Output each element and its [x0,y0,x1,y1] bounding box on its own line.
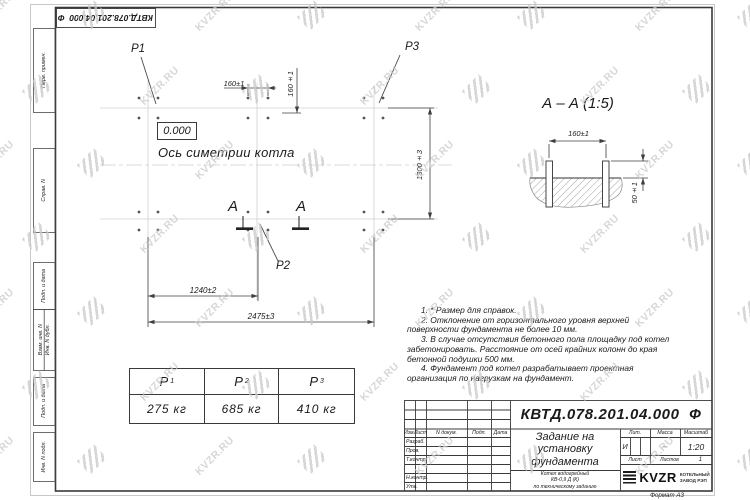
load-table: P1 P2 P3 275 кг 685 кг 410 кг [129,368,355,424]
tb-product: Котел водогрейный КВ-0,9 Д (К) по технич… [511,471,619,490]
section-view-title: А – А (1:5) [528,95,628,112]
tb-masshtab-value: 1:20 [680,438,712,456]
load-table-value-p3: 410 кг [279,395,354,423]
axis-label: Ось симетрии котла [158,145,295,160]
side-label-vzam-inv: Взам. инв. N Инв. N дубл. [33,309,55,370]
side-label-inv-podl: Инв. N подл. [33,432,55,481]
tb-lit-value: И [620,438,630,456]
section-letter-right: А [296,198,306,215]
tb-lit-label: Лит. [620,429,650,437]
side-label-perv-primen: Перв. примен. [33,28,55,112]
kvzr-logo-text: KVZR [639,470,676,485]
tb-col-list: Лист [415,429,426,437]
drawing-sheet: КВТД.078.201.04.000 Ф Перв. примен. Спра… [0,0,750,500]
load-table-value-p2: 685 кг [205,395,280,423]
format-note: Формат А3 [622,492,712,500]
note-2: 2. Отклонение от горизонтального уровня … [407,316,679,335]
section-letter-left: А [228,198,238,215]
tb-col-dokum: N докум. [426,429,467,437]
dim-160-top: 160±1 [220,79,248,88]
notes-block: 1. * Размер для справок. 2. Отклонение о… [407,306,679,384]
note-3: 3. В случае отсутствия бетонного пола пл… [407,335,679,364]
note-4: 4. Фундамент под котел разрабатывает про… [407,364,679,383]
tb-listov: Листов 1 [650,456,712,465]
doc-number-stamp-text: КВТД.078.201.04.000 Ф [58,13,153,23]
tb-row-utv: Утв. [406,483,426,492]
tb-company: KVZR КОТЕЛЬНЫЙ ЗАВОД РЭП [621,465,712,491]
text-layer: КВТД.078.201.04.000 Ф Перв. примен. Спра… [0,0,750,500]
tb-list-label: Лист [620,456,650,465]
tb-listov-value: 1 [699,457,702,463]
load-label-p2: P2 [276,260,290,272]
tb-title: Задание на установку фундамента [511,430,619,469]
load-table-header-p2: P2 [205,369,280,395]
level-mark: 0.000 [157,122,197,140]
tb-row-prov: Пров. [406,447,426,456]
tb-row-tkontr: Т.контр. [406,456,426,465]
dim-1240: 1240±2 [163,286,243,295]
load-table-value-p1: 275 кг [130,395,205,423]
tb-massa-label: Масса [650,429,680,437]
tb-col-data: Дата [491,429,510,437]
tb-col-podp: Подп. [467,429,491,437]
doc-number-stamp-rotated: КВТД.078.201.04.000 Ф [56,8,155,27]
load-table-header-p1: P1 [130,369,205,395]
dim-1300: 1300±3 [414,143,425,187]
tb-row-nkontr: Н.контр. [406,474,426,483]
section-dim-160: 160±1 [550,129,607,138]
side-label-sprav-n: Справ. N [33,148,55,232]
load-label-p1: P1 [131,43,145,55]
kvzr-company-name: КОТЕЛЬНЫЙ ЗАВОД РЭП [680,472,710,483]
load-label-p3: P3 [405,41,419,53]
load-table-header-p3: P3 [279,369,354,395]
side-label-podp-data-1: Подп. и дата [33,262,55,309]
side-label-podp-data-2: Подп. и дата [33,377,55,425]
dim-160-side: 160±1 [285,66,296,102]
dim-2475: 2475±3 [221,312,301,321]
tb-doc-number: КВТД.078.201.04.000 Ф [512,402,710,427]
tb-listov-label: Листов [660,457,679,463]
tb-row-razrab: Разраб. [406,438,426,447]
section-dim-50: 50±1 [629,178,640,208]
tb-massa-value: – [650,438,680,456]
tb-masshtab-label: Масштаб [680,429,712,437]
kvzr-logo-icon [623,471,636,484]
